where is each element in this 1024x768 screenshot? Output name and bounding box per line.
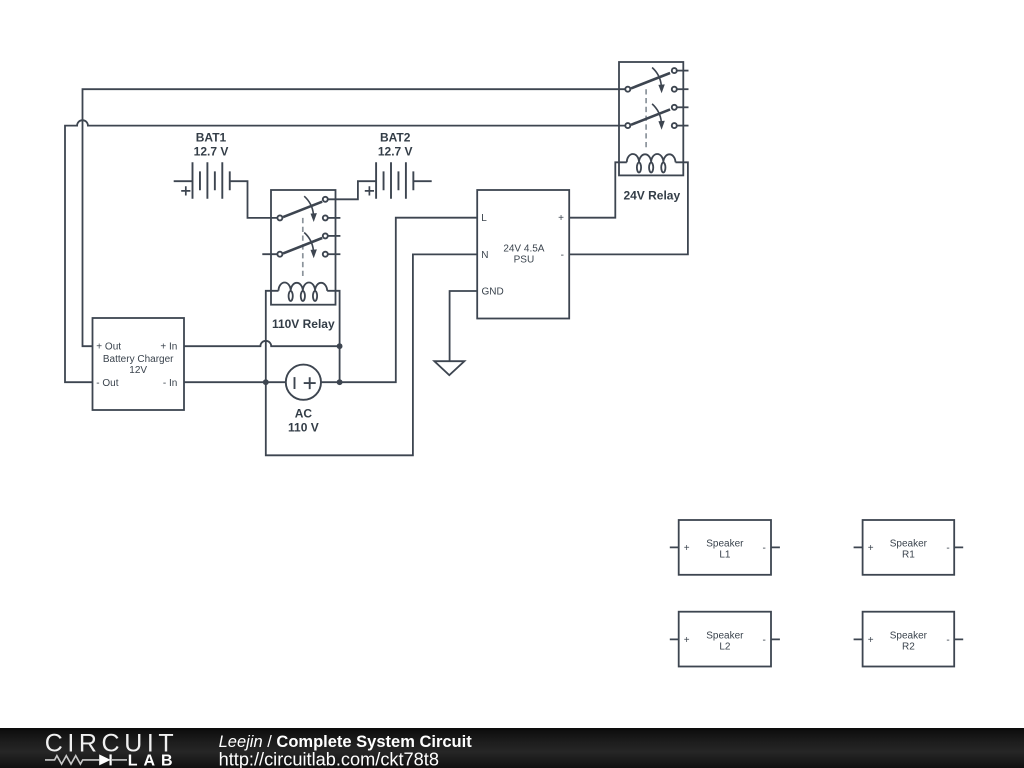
svg-text:http://circuitlab.com/ckt78t8: http://circuitlab.com/ckt78t8 bbox=[219, 749, 439, 768]
svg-text:Leejin / Complete System Circu: Leejin / Complete System Circuit bbox=[219, 733, 473, 751]
svg-text:LAB: LAB bbox=[128, 752, 179, 768]
